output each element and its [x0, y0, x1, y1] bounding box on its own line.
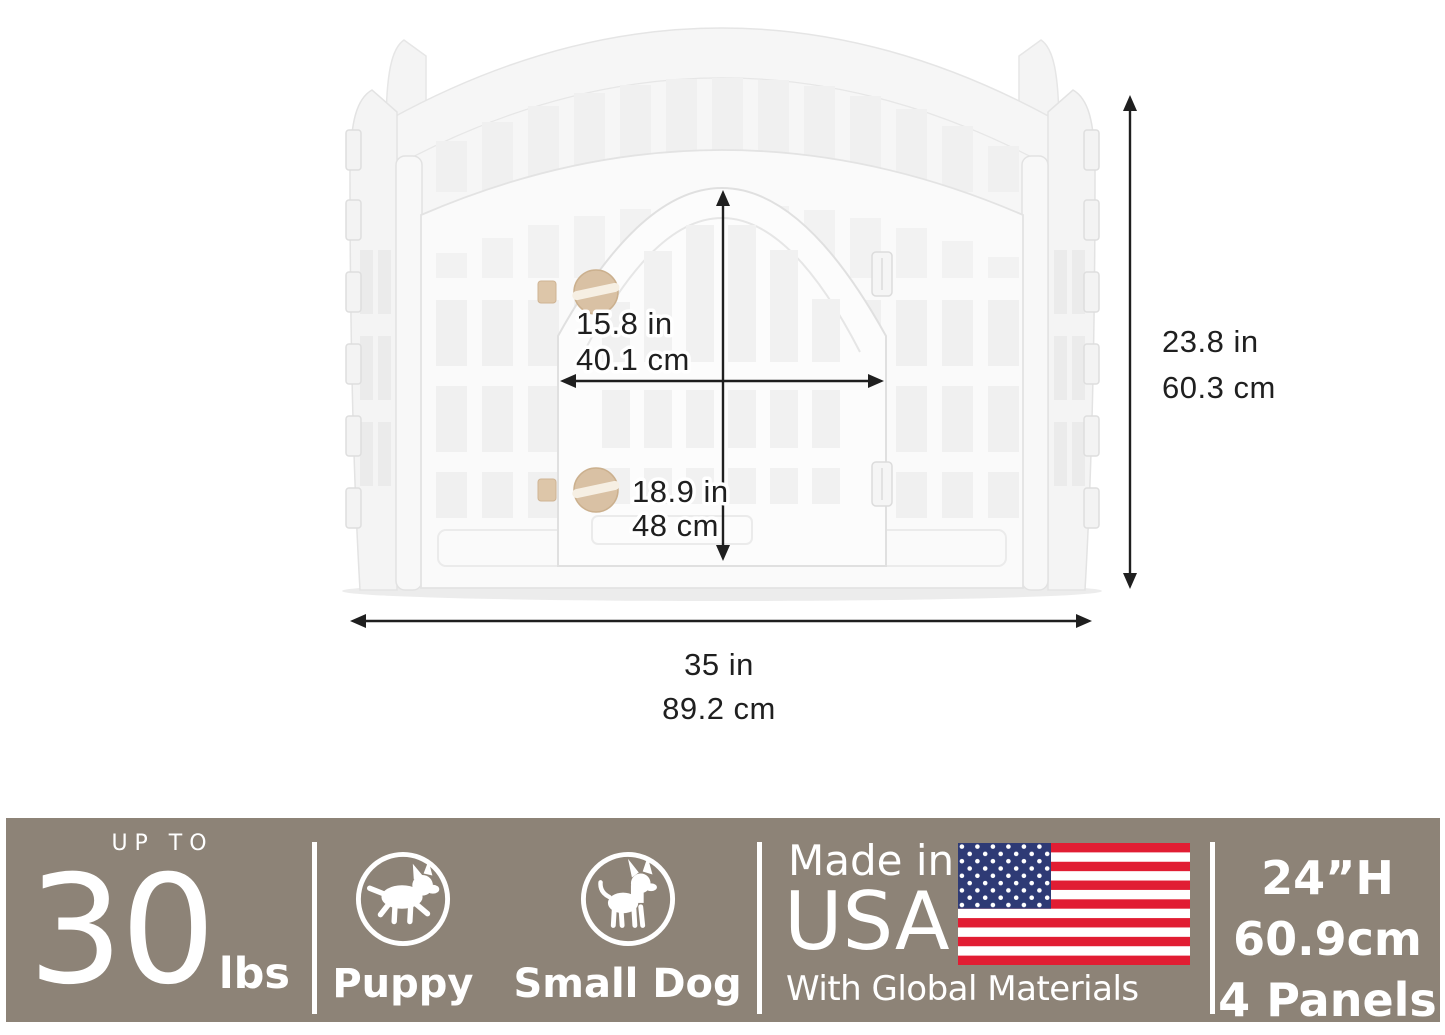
usa-label: USA [784, 882, 950, 962]
global-materials-label: With Global Materials [786, 972, 1139, 1006]
door-height-cm-label: 48 cm [632, 508, 719, 543]
small-dog-icon [579, 850, 677, 948]
made-in-usa-section: Made in USA [762, 818, 1210, 1022]
pet-types-section: Puppy [317, 818, 757, 1022]
pet-label-puppy: Puppy [332, 964, 473, 1004]
spec-height-imperial: 24”H [1261, 852, 1394, 905]
door-width-in-label: 15.8 in [576, 306, 673, 341]
playpen-diagram: 18.9 in 48 cm 15.8 in 40.1 cm 23.8 in 60… [0, 0, 1445, 810]
left-side-panel [346, 90, 397, 590]
pet-type-small-dog: Small Dog [513, 850, 741, 1022]
pen-height-dimension: 23.8 in 60.3 cm [1123, 95, 1276, 589]
pen-height-in-label: 23.8 in [1162, 324, 1259, 359]
weight-unit: lbs [219, 953, 290, 996]
right-side-panel [1048, 90, 1099, 590]
puppy-icon [354, 850, 452, 948]
weight-capacity-section: UP TO 30 lbs [6, 818, 312, 1022]
weight-value: 30 [28, 855, 213, 1008]
pen-width-cm-label: 89.2 cm [662, 691, 776, 726]
specs-section: 24”H 60.9cm 4 Panels [1215, 818, 1440, 1022]
feature-banner: UP TO 30 lbs [6, 818, 1440, 1022]
pen-width-in-label: 35 in [684, 647, 754, 682]
spec-panel-count: 4 Panels [1218, 974, 1437, 1027]
pen-height-cm-label: 60.3 cm [1162, 370, 1276, 405]
spec-height-metric: 60.9cm [1233, 913, 1422, 966]
door-width-cm-label: 40.1 cm [576, 342, 690, 377]
pet-label-small-dog: Small Dog [513, 964, 741, 1004]
product-infographic: 18.9 in 48 cm 15.8 in 40.1 cm 23.8 in 60… [0, 0, 1445, 1035]
pet-type-puppy: Puppy [332, 850, 473, 1022]
us-flag-icon [958, 843, 1190, 965]
pen-width-dimension: 35 in 89.2 cm [350, 614, 1092, 726]
door-height-in-label: 18.9 in [632, 474, 729, 509]
